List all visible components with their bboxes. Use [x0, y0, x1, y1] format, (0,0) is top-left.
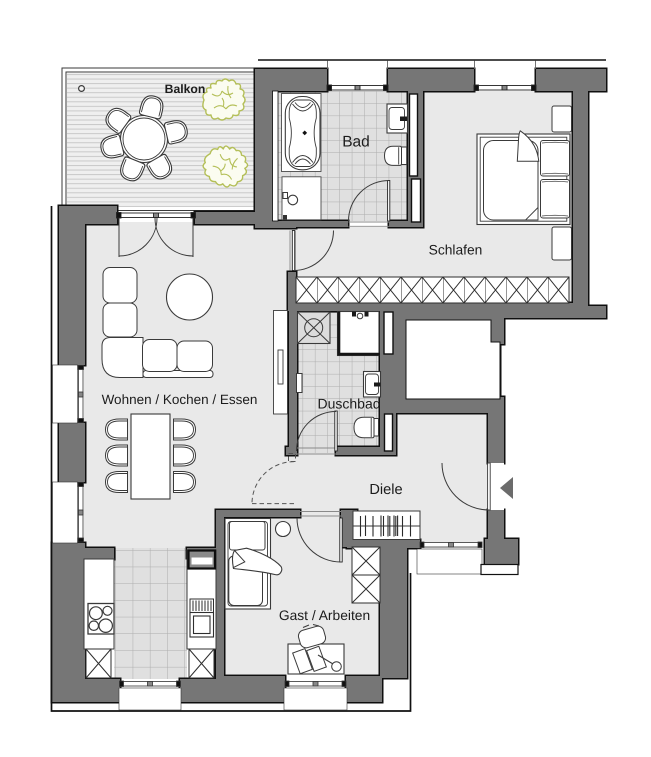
svg-text:Duschbad: Duschbad	[317, 396, 380, 412]
svg-text:Schlafen: Schlafen	[429, 243, 483, 258]
svg-text:Wohnen / Kochen / Essen: Wohnen / Kochen / Essen	[102, 392, 258, 407]
svg-text:Bad: Bad	[342, 134, 370, 151]
svg-text:Balkon: Balkon	[165, 82, 206, 96]
svg-text:Gast / Arbeiten: Gast / Arbeiten	[279, 608, 370, 623]
svg-text:Diele: Diele	[369, 482, 402, 498]
